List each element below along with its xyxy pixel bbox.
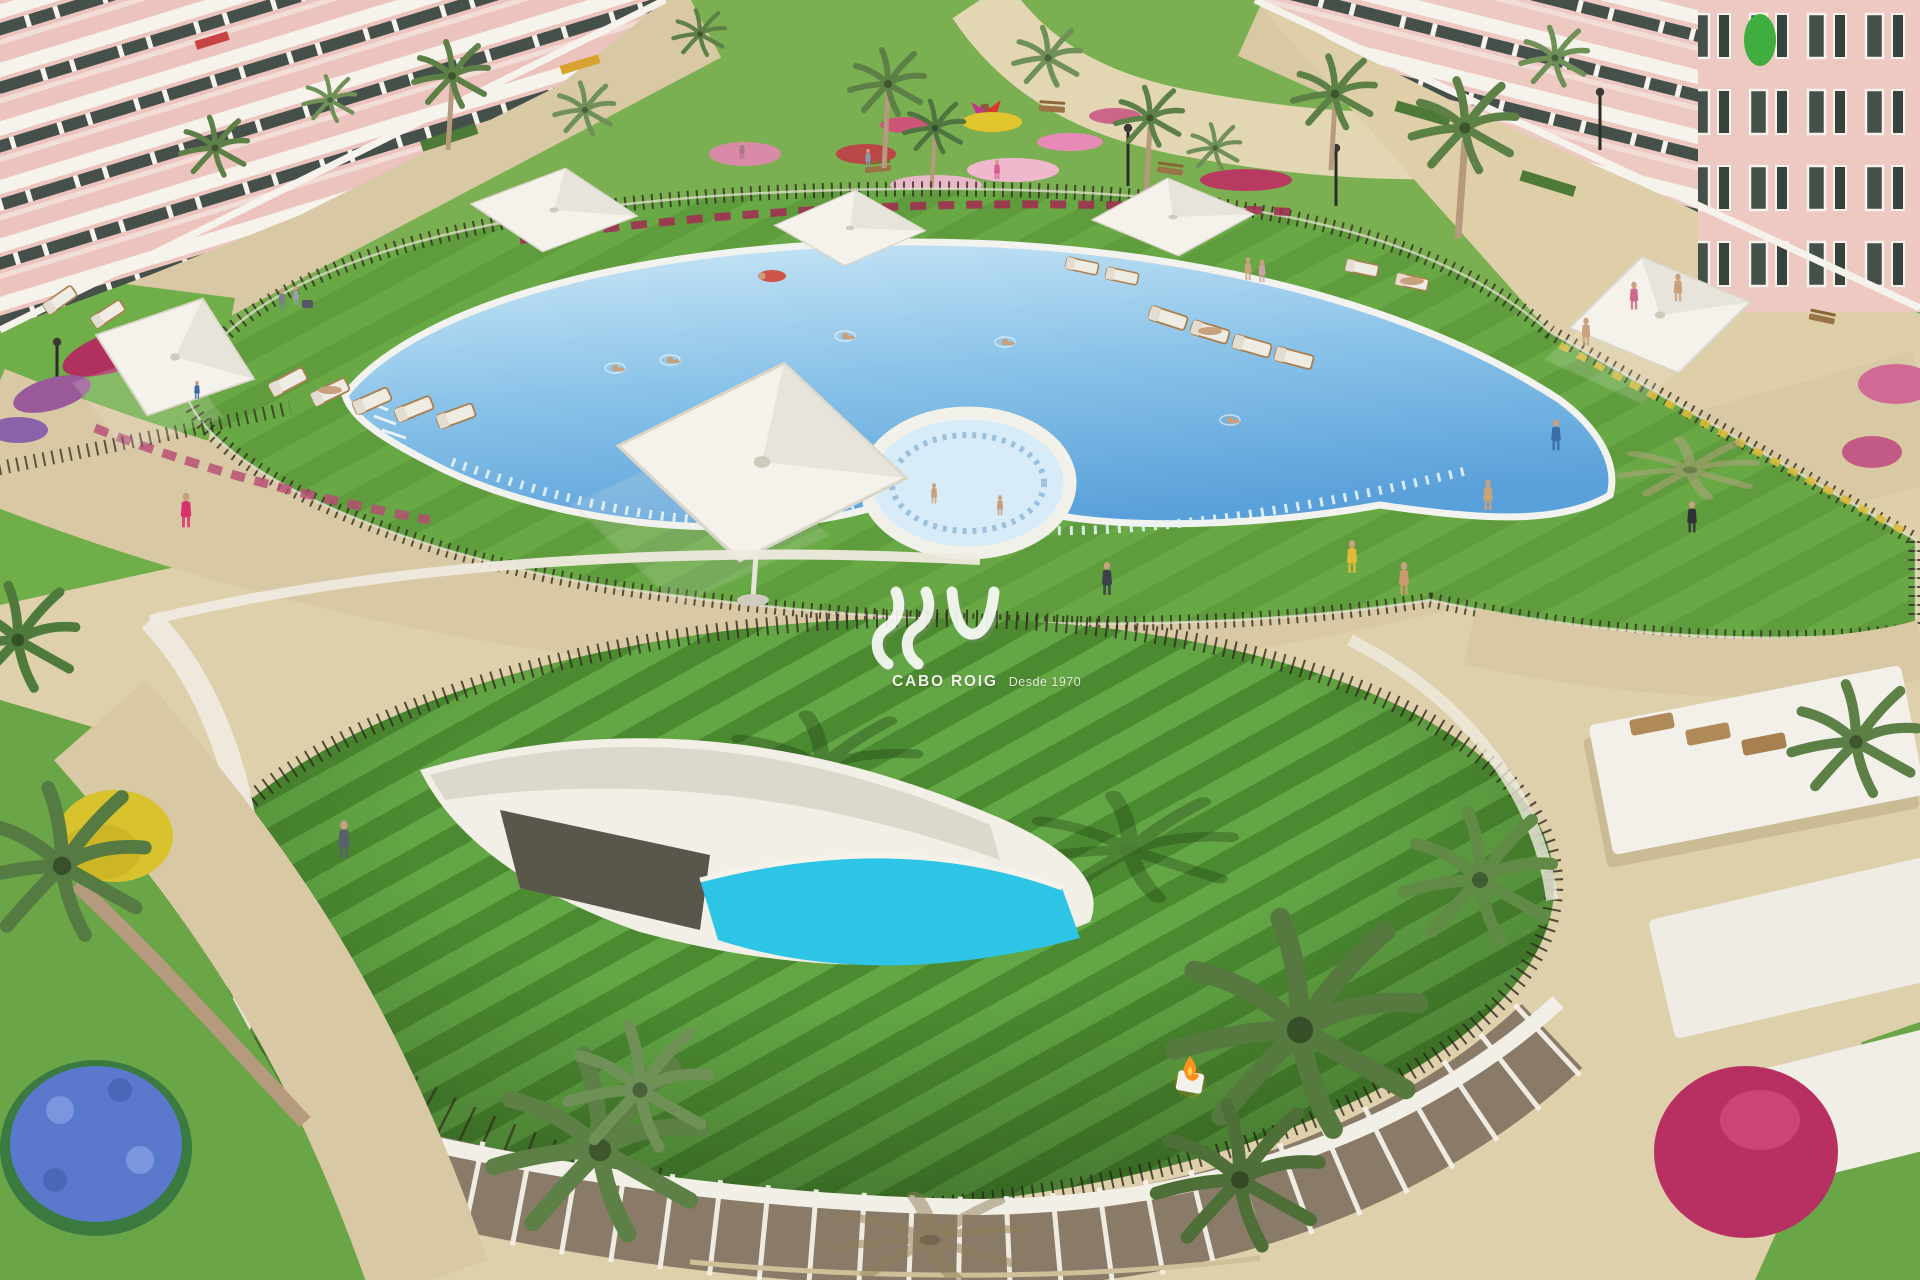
hydrangea-bloom: [108, 1078, 132, 1102]
pool-float-person: [758, 270, 786, 282]
right-path: [1470, 636, 1920, 668]
sunbather: [1400, 277, 1424, 285]
flower-bed-pink: [1842, 436, 1902, 468]
flower-bed-magenta: [1720, 1090, 1800, 1150]
flower-bed-pink: [1037, 133, 1103, 151]
flower-bed-magenta: [1654, 1066, 1838, 1238]
render-artwork: [0, 0, 1920, 1280]
hydrangea-bloom: [46, 1096, 74, 1124]
flower-bed: [709, 142, 781, 166]
sunbather: [1198, 327, 1222, 335]
flower-bed-blue-hydrangea: [10, 1066, 182, 1222]
stroller: [302, 300, 313, 308]
flower-bed-pink: [967, 158, 1059, 182]
flower-bed-yellow: [962, 112, 1022, 132]
hydrangea-bloom: [43, 1168, 67, 1192]
resort-aerial-render: CABO ROIG Desde 1970: [0, 0, 1920, 1280]
hydrangea-bloom: [126, 1146, 154, 1174]
parasol-base: [737, 594, 769, 606]
flower-bed-magenta: [1200, 169, 1292, 191]
balcony-tree: [1744, 14, 1776, 66]
sunbather: [318, 386, 342, 394]
